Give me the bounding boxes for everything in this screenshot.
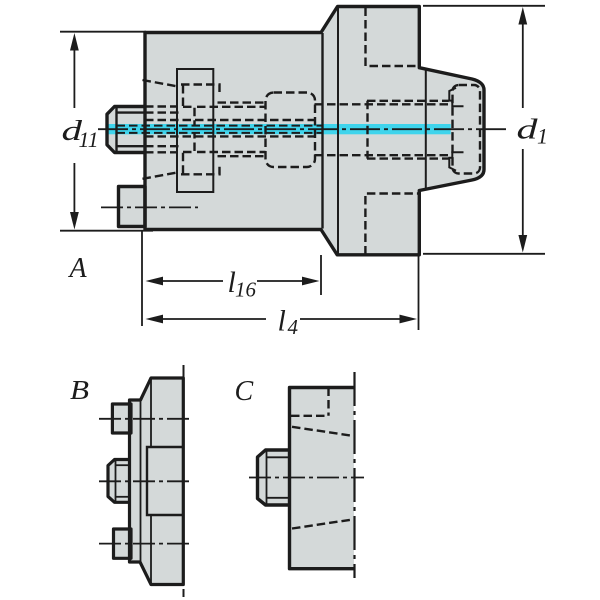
svg-text:B: B [70, 375, 89, 405]
svg-text:11: 11 [79, 127, 99, 152]
svg-text:C: C [235, 376, 254, 407]
svg-text:1: 1 [537, 124, 548, 149]
svg-text:d: d [517, 114, 539, 146]
svg-text:A: A [68, 253, 88, 284]
svg-text:16: 16 [235, 278, 257, 302]
svg-text:l: l [278, 305, 286, 338]
svg-text:4: 4 [288, 315, 299, 339]
